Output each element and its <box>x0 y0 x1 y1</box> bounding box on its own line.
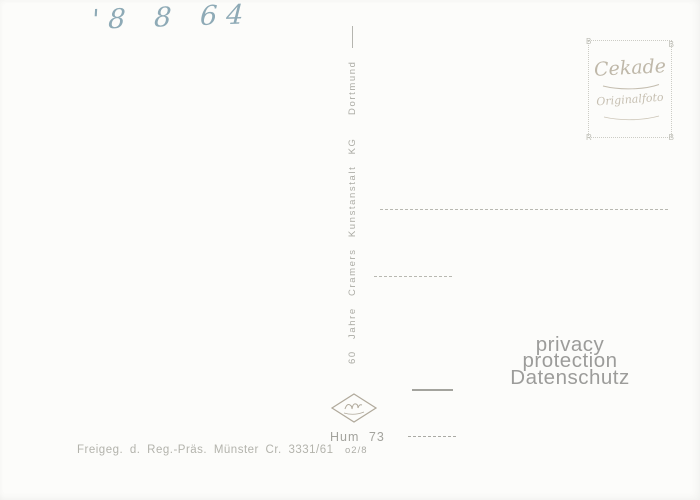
stamp-corner-top-left: B <box>586 37 591 46</box>
stamp-corner-bottom-left: R <box>586 133 592 142</box>
originalfoto-flourish-icon <box>603 115 661 122</box>
agfa-diamond-icon <box>330 392 378 426</box>
publisher-divider-text: 60 Jahre Cramers Kunstanstalt KG Dortmun… <box>347 26 358 364</box>
approval-imprint: Freigeg. d. Reg.-Präs. Münster Cr. 3331/… <box>77 444 334 456</box>
stamp-box: B B R B Cekade Originalfoto <box>588 40 672 138</box>
print-code: Hum 73 <box>330 430 385 444</box>
privacy-watermark: privacy protection Datenschutz <box>488 337 652 386</box>
cekade-underline-flourish-icon <box>601 83 661 91</box>
originalfoto-subtitle-script: Originalfoto <box>589 90 672 109</box>
publisher-divider-label: 60 Jahre Cramers Kunstanstalt KG Dortmun… <box>347 60 358 364</box>
stamp-corner-top-right: B <box>669 40 674 49</box>
postcard-back-scan: '8 8 64 B B R B Cekade Originalfoto 60 J… <box>0 0 700 500</box>
address-line-long <box>380 209 668 210</box>
recipient-line-dashed <box>408 436 456 437</box>
print-code-series: o2/8 <box>345 445 368 456</box>
privacy-watermark-line-de: Datenschutz <box>488 370 652 386</box>
privacy-watermark-line-en: privacy protection <box>488 337 652 370</box>
address-line-short <box>374 276 452 277</box>
stamp-corner-bottom-right: B <box>669 133 674 142</box>
recipient-line-solid <box>412 389 453 391</box>
divider-dash-line <box>352 26 353 48</box>
handwritten-date: '8 8 64 <box>91 0 253 36</box>
cekade-brand-script: Cekade <box>588 55 671 81</box>
